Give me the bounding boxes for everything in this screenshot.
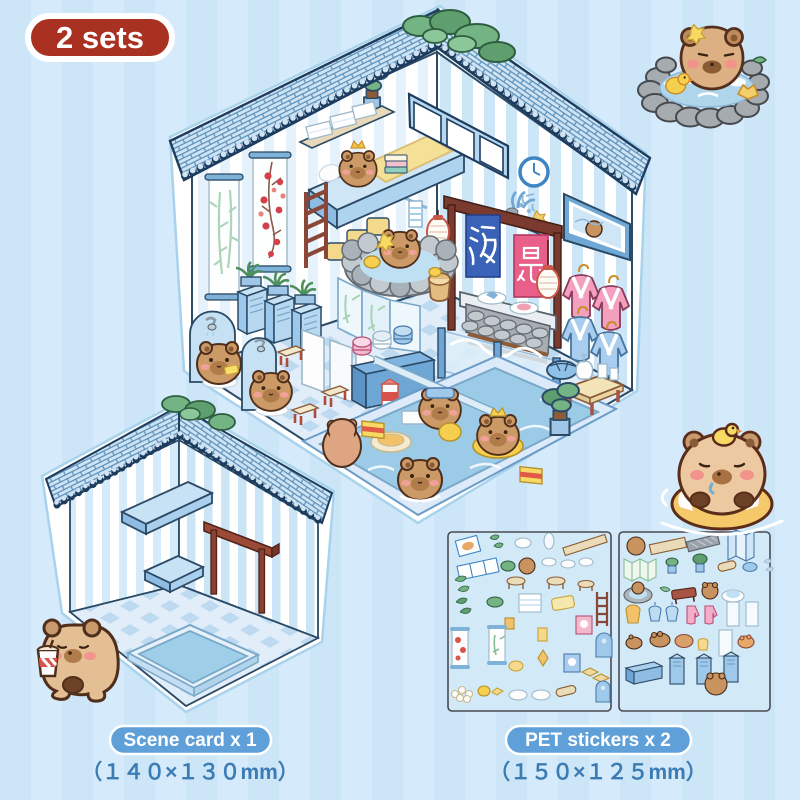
svg-text:2 sets: 2 sets <box>56 20 144 55</box>
svg-text:PET stickers x 2: PET stickers x 2 <box>525 730 671 751</box>
svg-text:（１５０×１２５mm）: （１５０×１２５mm） <box>489 760 707 784</box>
svg-text:Scene card x 1: Scene card x 1 <box>123 730 257 751</box>
svg-text:（１４０×１３０mm）: （１４０×１３０mm） <box>81 760 299 784</box>
